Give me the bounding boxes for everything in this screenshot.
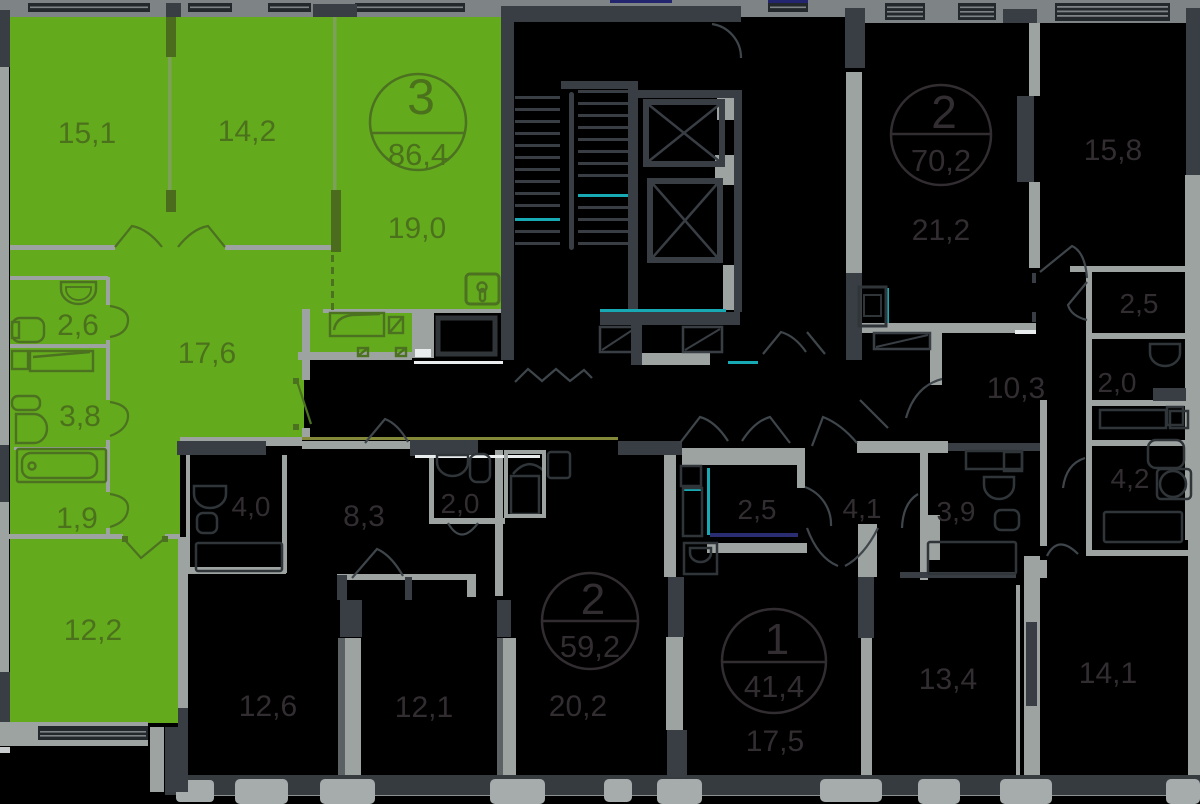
svg-text:3,8: 3,8	[59, 400, 101, 433]
svg-text:17,6: 17,6	[178, 337, 236, 370]
svg-text:15,1: 15,1	[58, 117, 116, 150]
svg-text:2,6: 2,6	[57, 309, 99, 342]
svg-text:4,2: 4,2	[1111, 463, 1150, 494]
svg-text:4,1: 4,1	[843, 493, 882, 524]
svg-text:14,2: 14,2	[218, 115, 276, 148]
svg-text:1: 1	[765, 615, 789, 664]
svg-text:41,4: 41,4	[744, 669, 804, 704]
svg-text:2,0: 2,0	[441, 488, 480, 519]
svg-text:10,3: 10,3	[987, 372, 1045, 405]
svg-text:12,2: 12,2	[64, 614, 122, 647]
svg-text:59,2: 59,2	[560, 629, 620, 664]
svg-text:2: 2	[581, 575, 605, 624]
svg-text:12,6: 12,6	[239, 690, 297, 723]
svg-text:3,9: 3,9	[937, 496, 976, 527]
svg-text:1,9: 1,9	[56, 502, 98, 535]
svg-text:4,0: 4,0	[232, 491, 271, 522]
svg-text:12,1: 12,1	[395, 691, 453, 724]
svg-text:2,0: 2,0	[1098, 367, 1137, 398]
svg-text:8,3: 8,3	[343, 500, 385, 533]
svg-text:21,2: 21,2	[912, 214, 970, 247]
svg-text:2: 2	[931, 86, 957, 138]
svg-text:2,5: 2,5	[1120, 288, 1159, 319]
svg-text:13,4: 13,4	[919, 663, 977, 696]
svg-text:15,8: 15,8	[1084, 134, 1142, 167]
svg-text:86,4: 86,4	[388, 137, 448, 172]
svg-text:3: 3	[407, 69, 435, 125]
svg-text:19,0: 19,0	[388, 212, 446, 245]
svg-text:20,2: 20,2	[549, 690, 607, 723]
svg-text:14,1: 14,1	[1079, 657, 1137, 690]
svg-text:70,2: 70,2	[911, 143, 971, 178]
svg-text:17,5: 17,5	[746, 725, 804, 758]
svg-text:2,5: 2,5	[738, 494, 777, 525]
